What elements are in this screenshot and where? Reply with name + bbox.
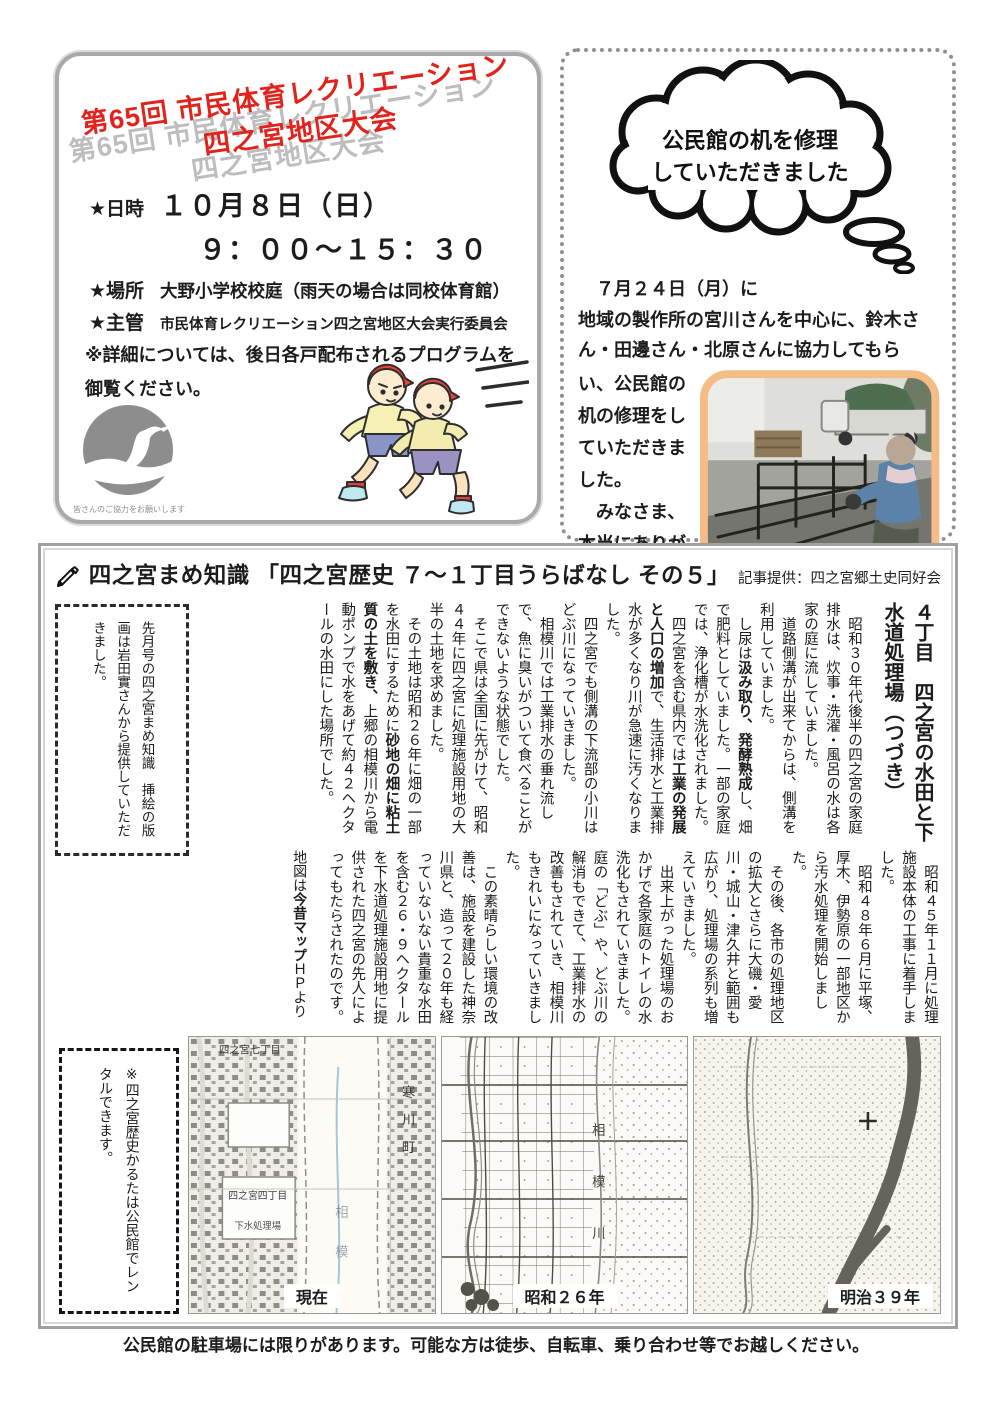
map-meiji39: 明治３９年 [693,1036,941,1314]
heron-logo-caption: 皆さんのご協力をお願いします [73,504,185,514]
article-paragraph: 四之宮を含む県内では工業の発展と人口の増加で、生活排水と工業排水が多くなり川が急… [601,602,689,848]
footer-notice: 公民館の駐車場には限りがあります。可能な方は徒歩、自転車、乗り合わせ等でお越しく… [0,1331,992,1356]
map-credit: 地図は今昔マップＨＰより [289,850,310,1030]
map-label-yonchome: 四之宮四丁目 [228,1189,287,1202]
map-caption-showa26: 昭和２６年 [512,1284,616,1308]
map-label-plant: 下水処理場 [234,1220,281,1231]
cloud-text-line2: していただきました [651,160,848,185]
event-time-row: ９：００～１５：３０ [199,228,489,267]
illustration-credit-text: 先月号の四之宮まめ知識 挿絵の版画は岩田實さんから提供していただきました。 [86,621,159,839]
article-paragraph: 昭和４５年１１月に処理施設本体の工事に着手しました。 [875,850,941,1030]
repair-intro-line: 地域の製作所の宮川さんを中心に、鈴木さん・田邊さん・北原さんに協力してもら [578,305,940,366]
date-value: １０月８日（日） [160,184,392,223]
map-caption-meiji39: 明治３９年 [828,1284,932,1308]
event-place-row: ★場所 大野小学校校庭（雨天の場合は同校体育館） [89,276,510,303]
section-title: 四之宮まめ知識 「四之宮歴史 ７～１丁目うらばなし その５」 [89,558,730,590]
map-present: 四之宮七丁目 寒川町 四之宮四丁目 下水処理場 相模 現在 [188,1036,436,1314]
running-children-illustration [297,344,529,516]
map-label-shichome: 四之宮七丁目 [219,1043,281,1056]
article-lower-text: 昭和４５年１１月に処理施設本体の工事に着手しました。 昭和４８年６月に平塚、厚木… [57,850,941,1030]
karuta-rental-box: ※四之宮歴史かるたは公民館でレンタルできます。 [59,1048,179,1314]
repair-cont-text: い、公民館の机の修理をしていただきました。 [578,374,686,490]
event-datetime-row: ★日時 １０月８日（日） [89,184,392,223]
event-organizer-row: ★主管 市民体育レクリエーション四之宮地区大会実行委員会 [89,308,508,335]
karuta-rental-text: ※四之宮歴史かるたは公民館でレンタルできます。 [92,1067,145,1295]
article-paragraph: 昭和３０年代後半の四之宮の家庭排水は、炊事・洗濯・風呂の水は各家の庭に流していま… [799,602,865,848]
illustration-credit-box: 先月号の四之宮まめ知識 挿絵の版画は岩田實さんから提供していただきました。 [55,604,189,856]
place-value: 大野小学校校庭（雨天の場合は同校体育館） [160,278,510,303]
place-label: ★場所 [89,276,144,303]
karuta-rental-wrap: ※四之宮歴史かるたは公民館でレンタルできます。 [55,1036,183,1314]
heron-logo: 皆さんのご協力をお願いします [69,398,191,520]
section-credit: 記事提供：四之宮郷土史同好会 [738,567,941,590]
local-history-section: 四之宮まめ知識 「四之宮歴史 ７～１丁目うらばなし その５」 記事提供：四之宮郷… [38,543,958,1329]
pencil-icon [55,564,81,590]
article-paragraph: 四之宮でも側溝の下流部の小川はどぶ川になっていきました。 [557,602,601,848]
desk-repair-box: 公民館の机を修理 していただきました ７月２４日（月）に 地域の製作所の宮川さん… [560,48,956,542]
map-showa26: 相模川 昭和２６年 [441,1036,689,1314]
article-paragraph: この素晴らしい環境の改善は、施設を建設した神奈川県と、造って２０年も経っていない… [324,850,500,1030]
article-paragraph: 道路側溝が出来てからは、側溝を利用していました。 [755,602,799,848]
map-label-sagami: 相模 [333,1205,349,1284]
article-paragraph: その土地は昭和２６年に畑の一部を水田にするために砂地の畑に粘土質の土を敷き、上郷… [314,602,424,848]
thought-cloud: 公民館の机を修理 していただきました [578,60,930,274]
article-paragraph: 出来上がった処理場のおかげで各家庭のトイレの水洗化もされていきました。庭の「どぶ… [500,850,676,1030]
map-label-samukawa: 寒川町 [400,1084,416,1168]
article-heading: ４丁目 四之宮の水田と下水道処理場（つづき） [877,602,937,848]
event-announcement-box: 第65回 市民体育レクリエーション 四之宮地区大会 第65回 市民体育レクリエー… [55,52,541,524]
article-paragraph: その後、各市の処理地区の拡大とさらに大磯・愛川・城山・津久井と範囲も広がり、処理… [677,850,787,1030]
newsletter-page: 第65回 市民体育レクリエーション 四之宮地区大会 第65回 市民体育レクリエー… [0,0,992,1403]
organizer-label: ★主管 [89,308,144,335]
article-paragraph: そこで県は全国に先がけて、昭和４４年に四之宮に処理施設用地の大半の土地を求めまし… [424,602,490,848]
organizer-value: 市民体育レクリエーション四之宮地区大会実行委員会 [160,313,508,334]
time-value: ９：００～１５：３０ [199,228,489,267]
map-caption-present: 現在 [284,1284,340,1308]
article-upper-text: ４丁目 四之宮の水田と下水道処理場（つづき） 昭和３０年代後半の四之宮の家庭排水… [193,602,941,848]
article-paragraph: 昭和４８年６月に平塚、厚木、伊勢原の一部地区から汚水処理を開始しました。 [787,850,875,1030]
map-label-sagamigawa: 相模川 [590,1123,606,1278]
section-header: 四之宮まめ知識 「四之宮歴史 ７～１丁目うらばなし その５」 記事提供：四之宮郷… [41,546,955,590]
article-paragraph: 相模川では工業排水の垂れ流しで、魚に臭いがついて食べることができないような状態で… [490,602,556,848]
article-paragraph: し尿は汲み取り、発酵熟成し、畑で肥料としていました。一部の家庭では、浄化槽が水洗… [689,602,755,848]
cloud-text-line1: 公民館の机を修理 [662,128,838,153]
historical-maps-row: ※四之宮歴史かるたは公民館でレンタルできます。 [55,1036,941,1314]
repair-date-line: ７月２４日（月）に [578,274,940,305]
datetime-label: ★日時 [89,194,144,221]
